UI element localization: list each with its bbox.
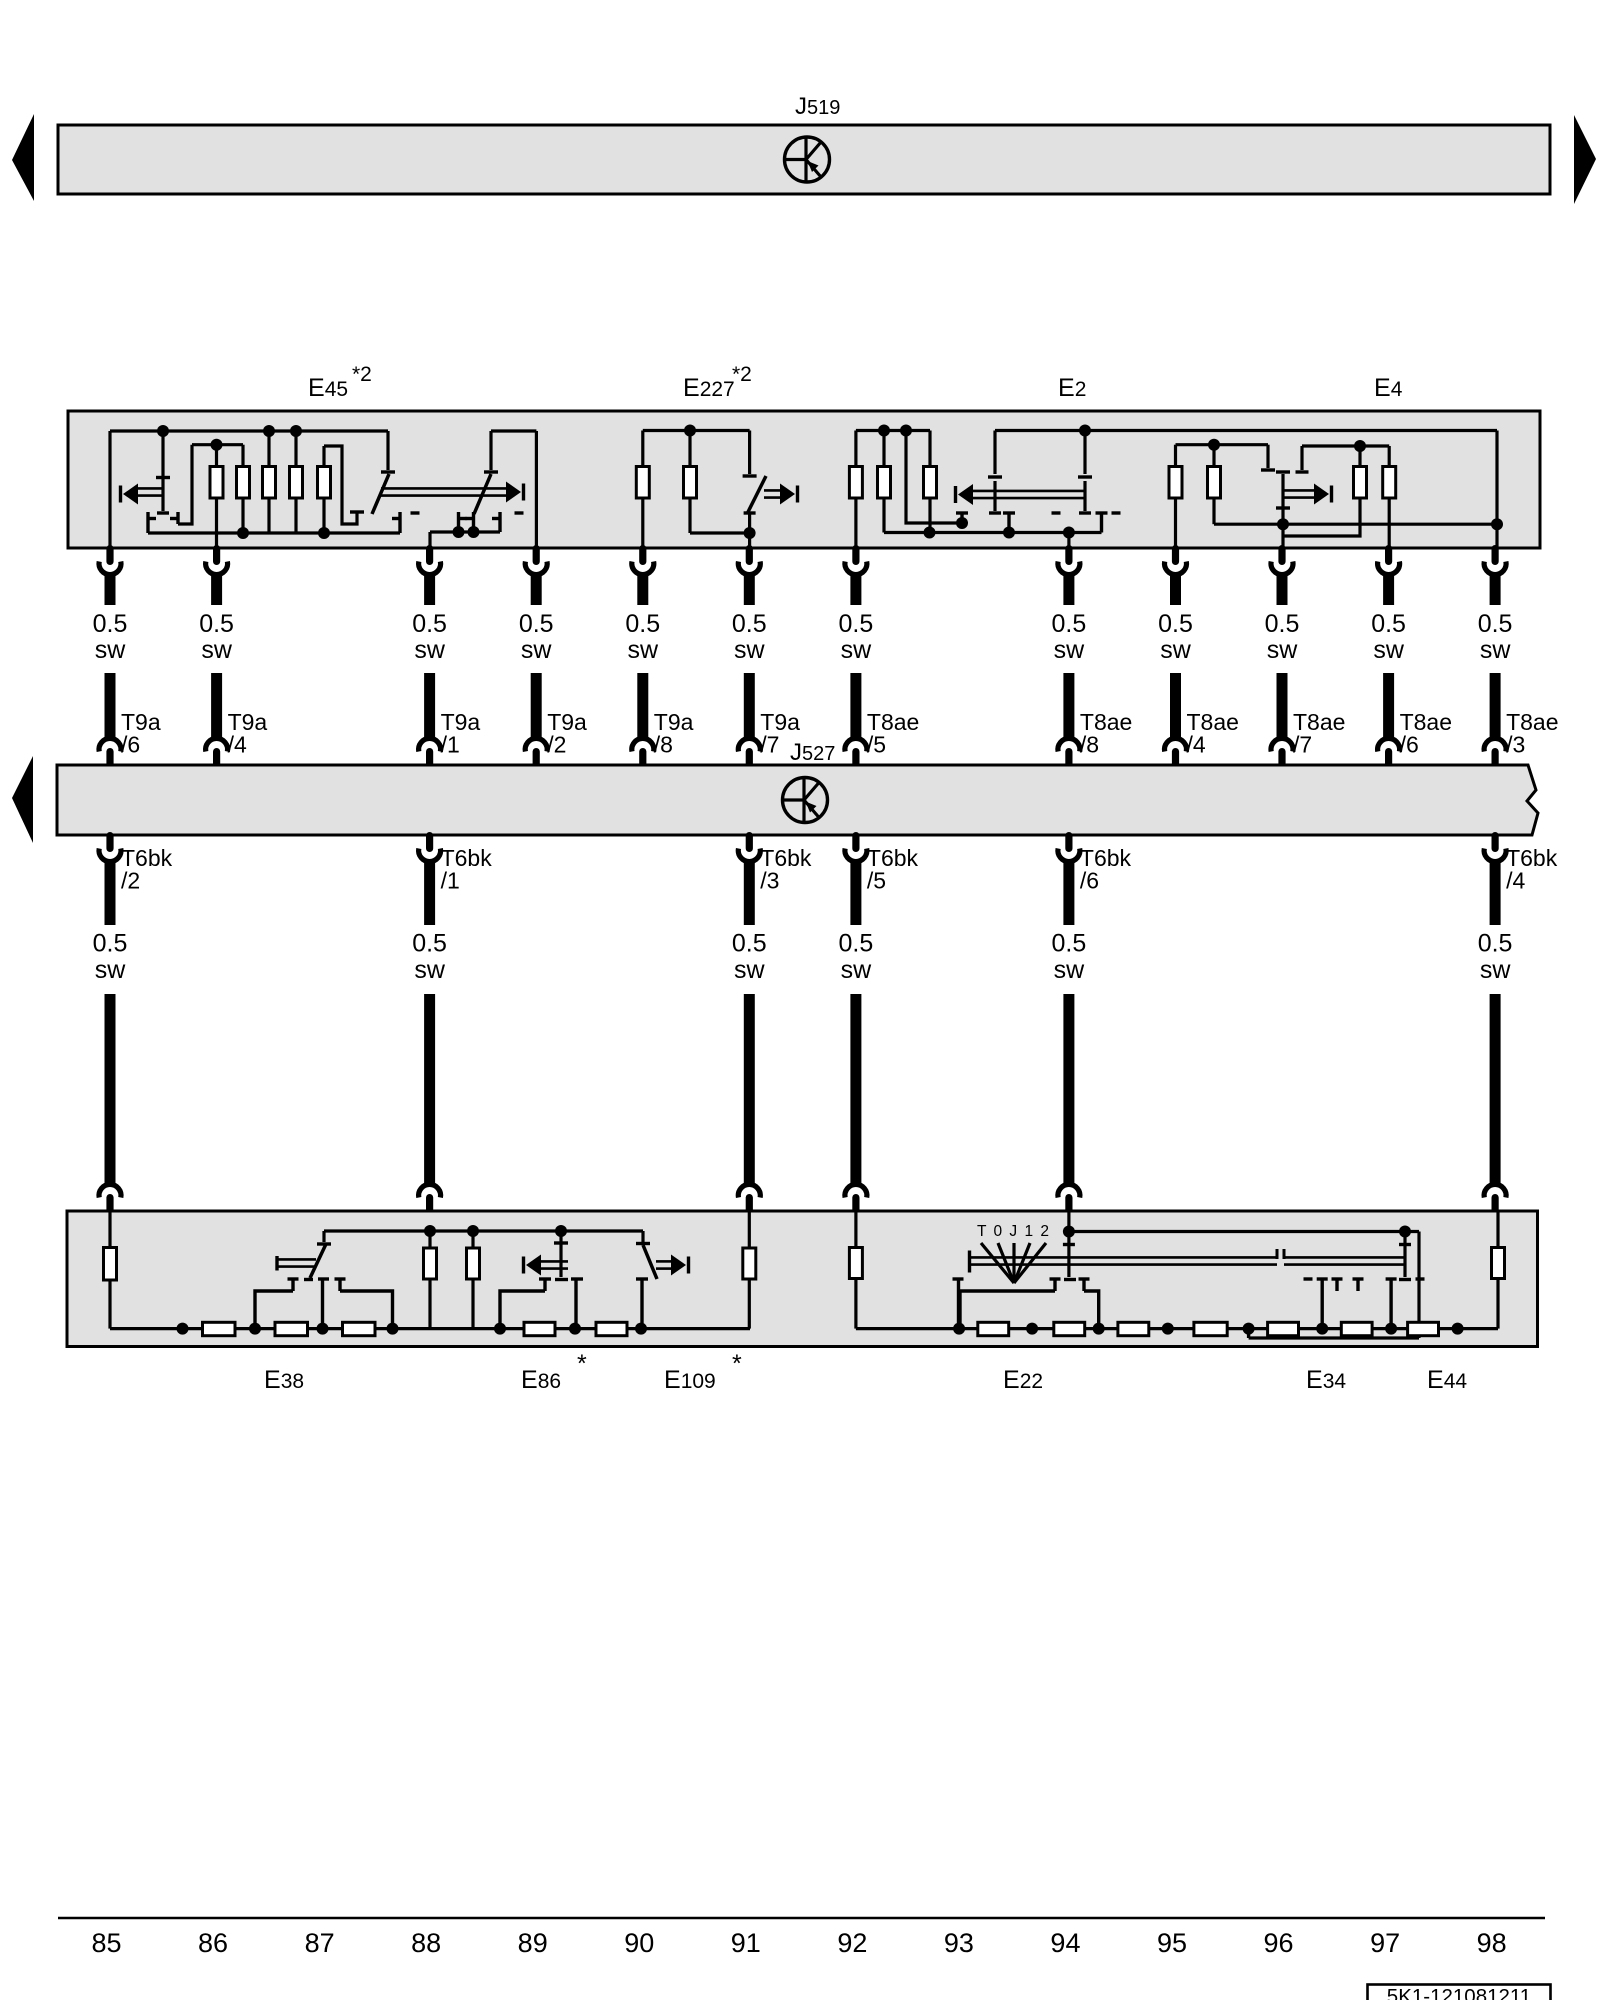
svg-text:/6: /6	[1400, 732, 1419, 758]
svg-text:sw: sw	[95, 956, 127, 984]
svg-text:0.5: 0.5	[1265, 610, 1300, 638]
svg-text:0.5: 0.5	[839, 930, 874, 958]
svg-text:/3: /3	[1506, 732, 1525, 758]
svg-text:*2: *2	[732, 363, 752, 386]
svg-text:/4: /4	[228, 732, 247, 758]
svg-text:0.5: 0.5	[412, 930, 447, 958]
svg-text:*: *	[732, 1350, 742, 1378]
svg-text:/5: /5	[867, 868, 886, 894]
svg-text:sw: sw	[1480, 636, 1512, 664]
svg-text:sw: sw	[1160, 636, 1192, 664]
svg-text:0.5: 0.5	[1158, 610, 1193, 638]
svg-text:sw: sw	[1267, 636, 1299, 664]
svg-text:89: 89	[518, 1928, 548, 1958]
svg-text:/4: /4	[1187, 732, 1206, 758]
svg-text:J519: J519	[795, 93, 840, 120]
svg-text:87: 87	[305, 1928, 335, 1958]
svg-text:5K1-121081211: 5K1-121081211	[1387, 1985, 1531, 2000]
svg-text:0.5: 0.5	[199, 610, 234, 638]
svg-text:88: 88	[411, 1928, 441, 1958]
svg-text:sw: sw	[95, 636, 127, 664]
svg-text:sw: sw	[1480, 956, 1512, 984]
svg-text:/8: /8	[1080, 732, 1099, 758]
svg-text:sw: sw	[841, 956, 873, 984]
svg-text:/6: /6	[121, 732, 140, 758]
svg-text:/2: /2	[121, 868, 140, 894]
svg-text:93: 93	[944, 1928, 974, 1958]
svg-text:95: 95	[1157, 1928, 1187, 1958]
svg-text:sw: sw	[414, 636, 446, 664]
svg-text:0.5: 0.5	[93, 930, 128, 958]
svg-text:/8: /8	[654, 732, 673, 758]
svg-text:sw: sw	[841, 636, 873, 664]
svg-text:0.5: 0.5	[1371, 610, 1406, 638]
svg-text:0.5: 0.5	[93, 610, 128, 638]
svg-text:0.5: 0.5	[732, 610, 767, 638]
svg-text:/6: /6	[1080, 868, 1099, 894]
svg-text:T 0 J 1 2: T 0 J 1 2	[977, 1223, 1051, 1240]
svg-text:sw: sw	[734, 636, 766, 664]
svg-text:E44: E44	[1427, 1366, 1467, 1394]
svg-text:96: 96	[1264, 1928, 1294, 1958]
svg-text:E38: E38	[264, 1366, 304, 1394]
svg-text:*: *	[577, 1350, 587, 1378]
svg-text:94: 94	[1050, 1928, 1080, 1958]
svg-text:E2: E2	[1058, 374, 1086, 402]
svg-text:98: 98	[1477, 1928, 1507, 1958]
svg-text:91: 91	[731, 1928, 761, 1958]
svg-text:E34: E34	[1306, 1366, 1346, 1394]
svg-text:/7: /7	[1293, 732, 1312, 758]
svg-text:97: 97	[1370, 1928, 1400, 1958]
svg-text:85: 85	[91, 1928, 121, 1958]
svg-text:E4: E4	[1374, 374, 1403, 402]
svg-text:sw: sw	[521, 636, 553, 664]
svg-text:/1: /1	[441, 868, 460, 894]
svg-text:E109: E109	[664, 1366, 716, 1394]
svg-text:E227: E227	[683, 374, 735, 402]
svg-text:sw: sw	[628, 636, 660, 664]
svg-text:/5: /5	[867, 732, 886, 758]
svg-text:/3: /3	[760, 868, 779, 894]
svg-text:0.5: 0.5	[732, 930, 767, 958]
svg-text:sw: sw	[734, 956, 766, 984]
svg-text:E22: E22	[1003, 1366, 1043, 1394]
svg-text:sw: sw	[1054, 956, 1086, 984]
svg-text:sw: sw	[1373, 636, 1405, 664]
svg-text:/1: /1	[441, 732, 460, 758]
svg-text:sw: sw	[1054, 636, 1086, 664]
svg-text:*2: *2	[352, 363, 372, 386]
svg-text:0.5: 0.5	[1052, 610, 1087, 638]
svg-text:0.5: 0.5	[625, 610, 660, 638]
svg-text:0.5: 0.5	[412, 610, 447, 638]
svg-text:E45: E45	[308, 374, 348, 402]
svg-text:E86: E86	[521, 1366, 561, 1394]
svg-text:/4: /4	[1506, 868, 1525, 894]
svg-text:sw: sw	[414, 956, 446, 984]
svg-text:0.5: 0.5	[519, 610, 554, 638]
svg-text:0.5: 0.5	[1478, 610, 1513, 638]
svg-text:/7: /7	[760, 732, 779, 758]
svg-text:90: 90	[624, 1928, 654, 1958]
svg-text:86: 86	[198, 1928, 228, 1958]
svg-text:/2: /2	[547, 732, 566, 758]
svg-text:0.5: 0.5	[1478, 930, 1513, 958]
svg-text:92: 92	[837, 1928, 867, 1958]
svg-text:sw: sw	[201, 636, 233, 664]
svg-text:0.5: 0.5	[1052, 930, 1087, 958]
svg-text:J527: J527	[790, 739, 835, 766]
svg-text:0.5: 0.5	[839, 610, 874, 638]
